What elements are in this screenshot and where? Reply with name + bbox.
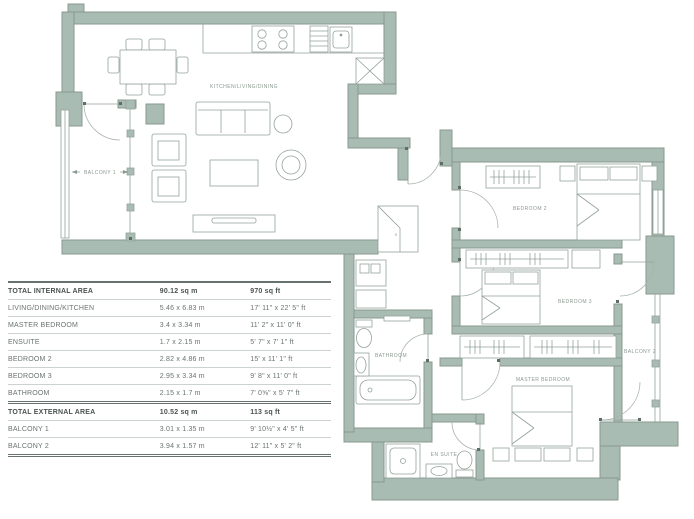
cupboard xyxy=(572,250,600,268)
row-label: ENSUITE xyxy=(8,334,160,351)
row-label: BATHROOM xyxy=(8,385,160,403)
row-metric: 2.95 x 3.34 m xyxy=(160,368,250,385)
row-metric: 3.4 x 3.34 m xyxy=(160,317,250,334)
floorplan-page: KITCHEN/LIVING/DINING BALCONY 1 BEDROOM … xyxy=(0,0,694,519)
label-kitchen-living-dining: KITCHEN/LIVING/DINING xyxy=(210,84,278,90)
bedside-table xyxy=(560,166,575,181)
row-label: TOTAL INTERNAL AREA xyxy=(8,282,160,300)
bedside-table xyxy=(577,448,593,461)
row-label: BALCONY 1 xyxy=(8,421,160,438)
wall xyxy=(452,326,622,334)
wall-pillar xyxy=(646,236,674,294)
label-balcony-2: BALCONY 2 xyxy=(624,349,656,355)
dining-chair xyxy=(149,39,165,50)
toilet-cistern xyxy=(456,470,473,477)
dining-chair xyxy=(108,57,119,73)
rail-post xyxy=(652,360,659,367)
utility-unit xyxy=(356,290,386,308)
area-table: TOTAL INTERNAL AREA 90.12 sq m 970 sq ft… xyxy=(8,281,331,457)
closet-row xyxy=(460,336,616,358)
row-metric: 5.46 x 6.83 m xyxy=(160,300,250,317)
dining-table xyxy=(120,50,176,84)
rail-post xyxy=(126,100,135,109)
rail-post xyxy=(127,130,134,137)
toilet-cistern xyxy=(356,320,372,327)
row-metric: 3.94 x 1.57 m xyxy=(160,438,250,456)
wall xyxy=(500,358,622,366)
row-label: BEDROOM 2 xyxy=(8,351,160,368)
sofa xyxy=(196,102,270,135)
ensuite-door-arc xyxy=(452,422,480,450)
row-metric: 90.12 sq m xyxy=(160,282,250,300)
bed xyxy=(577,164,640,240)
hob xyxy=(252,26,294,52)
table-row: MASTER BEDROOM 3.4 x 3.34 m 11' 2" x 11'… xyxy=(8,317,331,334)
row-imperial: 9' 10½" x 4' 5" ft xyxy=(250,421,331,438)
ensuite-fittings xyxy=(386,444,473,478)
row-metric: 2.82 x 4.86 m xyxy=(160,351,250,368)
armchair xyxy=(152,170,186,202)
label-bedroom-3: BEDROOM 3 xyxy=(558,299,592,305)
row-metric: 3.01 x 1.35 m xyxy=(160,421,250,438)
table-row: BEDROOM 3 2.95 x 3.34 m 9' 8" x 11' 0" f… xyxy=(8,368,331,385)
wall xyxy=(424,318,432,334)
table-row: ENSUITE 1.7 x 2.15 m 5' 7" x 7' 1" ft xyxy=(8,334,331,351)
pillow xyxy=(515,448,541,461)
tv-unit xyxy=(193,215,275,232)
toilet xyxy=(457,451,472,469)
bedroom2-furniture xyxy=(486,164,657,240)
dining-set xyxy=(108,39,188,95)
wall xyxy=(600,446,620,480)
bedroom2-door-arc xyxy=(460,190,498,228)
rail-post xyxy=(652,400,659,407)
label-storage: S xyxy=(395,232,398,237)
wall xyxy=(384,12,396,94)
dining-chair xyxy=(149,84,165,95)
wall xyxy=(600,422,678,446)
row-imperial: 11' 2" x 11' 0" ft xyxy=(250,317,331,334)
row-label: TOTAL EXTERNAL AREA xyxy=(8,403,160,421)
wall xyxy=(62,12,74,104)
bedside-table xyxy=(642,166,657,181)
pillow xyxy=(544,448,570,461)
label-bathroom: BATHROOM xyxy=(375,353,407,359)
wall xyxy=(398,148,408,180)
oven xyxy=(310,26,328,52)
label-master-bedroom: MASTER BEDROOM xyxy=(516,377,570,383)
row-imperial: 12' 11" x 5' 2" ft xyxy=(250,438,331,456)
wall xyxy=(344,254,354,432)
rail-post xyxy=(127,204,134,211)
table-row: BALCONY 1 3.01 x 1.35 m 9' 10½" x 4' 5" … xyxy=(8,421,331,438)
swivel-chair xyxy=(276,150,306,180)
dining-chair xyxy=(126,39,142,50)
wall xyxy=(62,12,396,24)
master-furniture xyxy=(493,386,593,461)
row-label: BALCONY 2 xyxy=(8,438,160,456)
table-row: BEDROOM 2 2.82 x 4.86 m 15' x 11' 1" ft xyxy=(8,351,331,368)
master-door-arc xyxy=(462,362,500,400)
sink-tap xyxy=(340,34,343,37)
bedroom3-furniture xyxy=(466,250,600,324)
row-metric: 10.52 sq m xyxy=(160,403,250,421)
row-imperial: 5' 7" x 7' 1" ft xyxy=(250,334,331,351)
wall xyxy=(476,450,484,480)
towel-rail xyxy=(384,316,410,321)
table-row-total-external: TOTAL EXTERNAL AREA 10.52 sq m 113 sq ft xyxy=(8,403,331,421)
row-label: LIVING/DINING/KITCHEN xyxy=(8,300,160,317)
row-imperial: 113 sq ft xyxy=(250,403,331,421)
row-label: MASTER BEDROOM xyxy=(8,317,160,334)
dining-chair xyxy=(177,57,188,73)
hall-storage xyxy=(356,206,418,308)
table-row: BATHROOM 2.15 x 1.7 m 7' 0⅝" x 5' 7" ft xyxy=(8,385,331,403)
rail-post xyxy=(127,168,134,175)
row-imperial: 15' x 11' 1" ft xyxy=(250,351,331,368)
kitchen-fittings xyxy=(203,24,384,84)
wall xyxy=(348,138,410,148)
table-row: LIVING/DINING/KITCHEN 5.46 x 6.83 m 17' … xyxy=(8,300,331,317)
dining-chair xyxy=(126,84,142,95)
wall xyxy=(372,442,384,482)
storage-cupboard xyxy=(378,206,418,252)
entrance-door-arc xyxy=(408,150,441,184)
wall xyxy=(372,478,618,500)
row-metric: 1.7 x 2.15 m xyxy=(160,334,250,351)
label-en-suite: EN SUITE xyxy=(431,452,458,458)
row-label: BEDROOM 3 xyxy=(8,368,160,385)
wall xyxy=(344,428,432,442)
wall xyxy=(614,254,622,264)
label-bedroom-2: BEDROOM 2 xyxy=(513,206,547,212)
toilet xyxy=(357,329,372,348)
row-imperial: 970 sq ft xyxy=(250,282,331,300)
row-imperial: 17' 11" x 22' 5" ft xyxy=(250,300,331,317)
table-row: BALCONY 2 3.94 x 1.57 m 12' 11" x 5' 2" … xyxy=(8,438,331,456)
label-balcony-1: BALCONY 1 xyxy=(84,170,116,176)
side-table xyxy=(274,115,292,133)
wall xyxy=(62,240,378,254)
row-imperial: 9' 8" x 11' 0" ft xyxy=(250,368,331,385)
wall xyxy=(452,148,664,162)
balcony1-door-arc xyxy=(84,104,120,140)
living-furniture xyxy=(152,102,306,232)
wall xyxy=(440,130,452,166)
table-row-total-internal: TOTAL INTERNAL AREA 90.12 sq m 970 sq ft xyxy=(8,282,331,300)
wall xyxy=(440,358,462,366)
armchair xyxy=(152,134,186,166)
bathroom-fittings xyxy=(354,316,420,404)
wall-column xyxy=(146,104,164,124)
coffee-table xyxy=(210,160,258,186)
wall xyxy=(424,362,432,428)
wall xyxy=(452,162,460,190)
bedside-table xyxy=(493,448,509,461)
rail-post xyxy=(652,316,659,323)
row-imperial: 7' 0⅝" x 5' 7" ft xyxy=(250,385,331,403)
wall xyxy=(452,240,622,248)
row-metric: 2.15 x 1.7 m xyxy=(160,385,250,403)
